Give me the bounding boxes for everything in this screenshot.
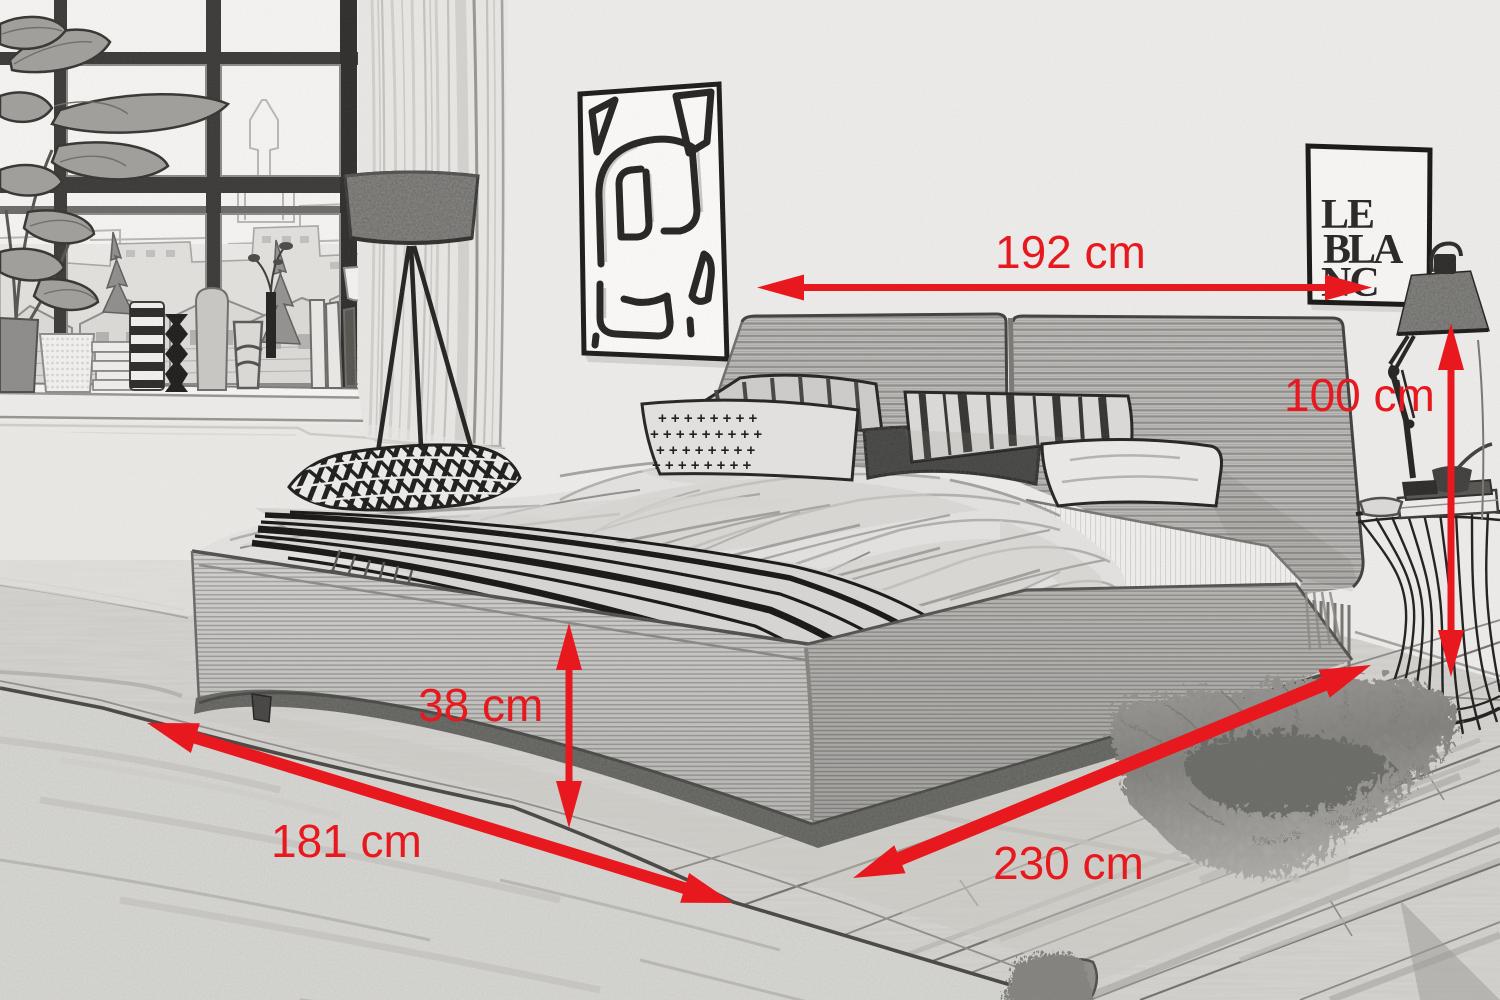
svg-text:192 cm: 192 cm xyxy=(995,226,1146,278)
svg-text:100 cm: 100 cm xyxy=(1284,369,1435,421)
svg-text:38 cm: 38 cm xyxy=(418,679,543,731)
svg-text:181 cm: 181 cm xyxy=(271,815,422,867)
svg-text:230 cm: 230 cm xyxy=(993,837,1144,889)
svg-text:+ + + + + + + + +: + + + + + + + + + xyxy=(650,426,762,443)
svg-text:+ + + + + + + +: + + + + + + + + xyxy=(658,410,757,427)
svg-text:+ + + + + + + +: + + + + + + + + xyxy=(652,457,751,474)
